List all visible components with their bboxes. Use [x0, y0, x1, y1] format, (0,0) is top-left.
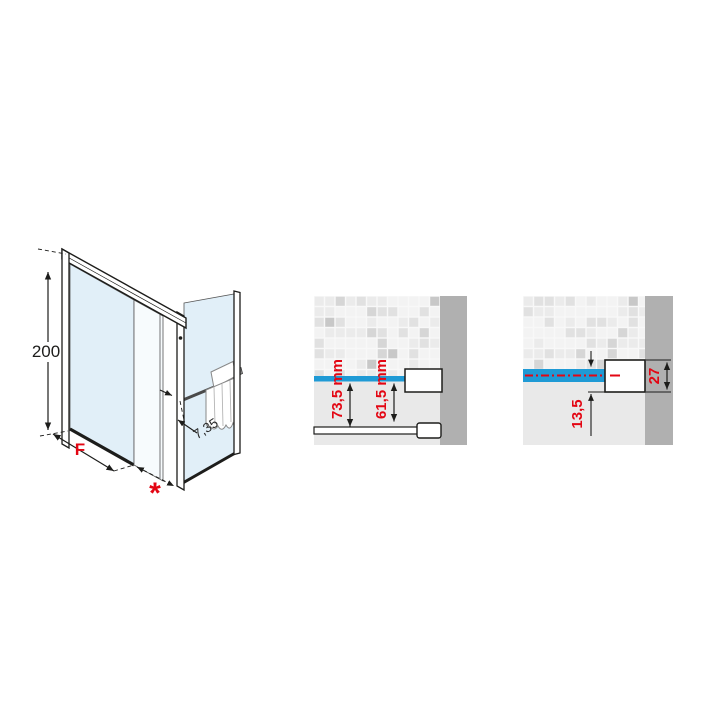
overlap-dim-label: 13,5: [569, 399, 586, 428]
fixed-panel-dim-label: F: [75, 440, 85, 459]
diagram-page: 200 F * 7,35 73,5 mm: [0, 0, 720, 720]
side-panel: [181, 291, 243, 484]
profile-knob: [179, 336, 183, 340]
inner-dim-label: 61,5 mm: [373, 359, 390, 419]
wall-strip: [440, 296, 467, 445]
glass-end-profile: [417, 423, 441, 438]
outer-dim-label: 73,5 mm: [329, 359, 346, 419]
sliding-door-panel: [134, 300, 163, 481]
left-wall-profile: [62, 249, 69, 448]
detail-middle-section: 73,5 mm 61,5 mm: [314, 296, 467, 445]
side-panel-frame: [234, 291, 240, 455]
entry-dim-label: *: [149, 477, 161, 510]
profile-dim-label: 27: [646, 368, 663, 385]
isometric-shower-drawing: 200 F * 7,35: [32, 249, 243, 510]
height-dim-label: 200: [32, 342, 60, 361]
detail-right-section: 13,5 27: [523, 296, 673, 445]
extension-dash-F: [114, 465, 134, 471]
wall-profile-section: [405, 369, 442, 392]
glass-panel-section: [314, 427, 418, 434]
technical-diagram-canvas: 200 F * 7,35 73,5 mm: [0, 0, 720, 720]
